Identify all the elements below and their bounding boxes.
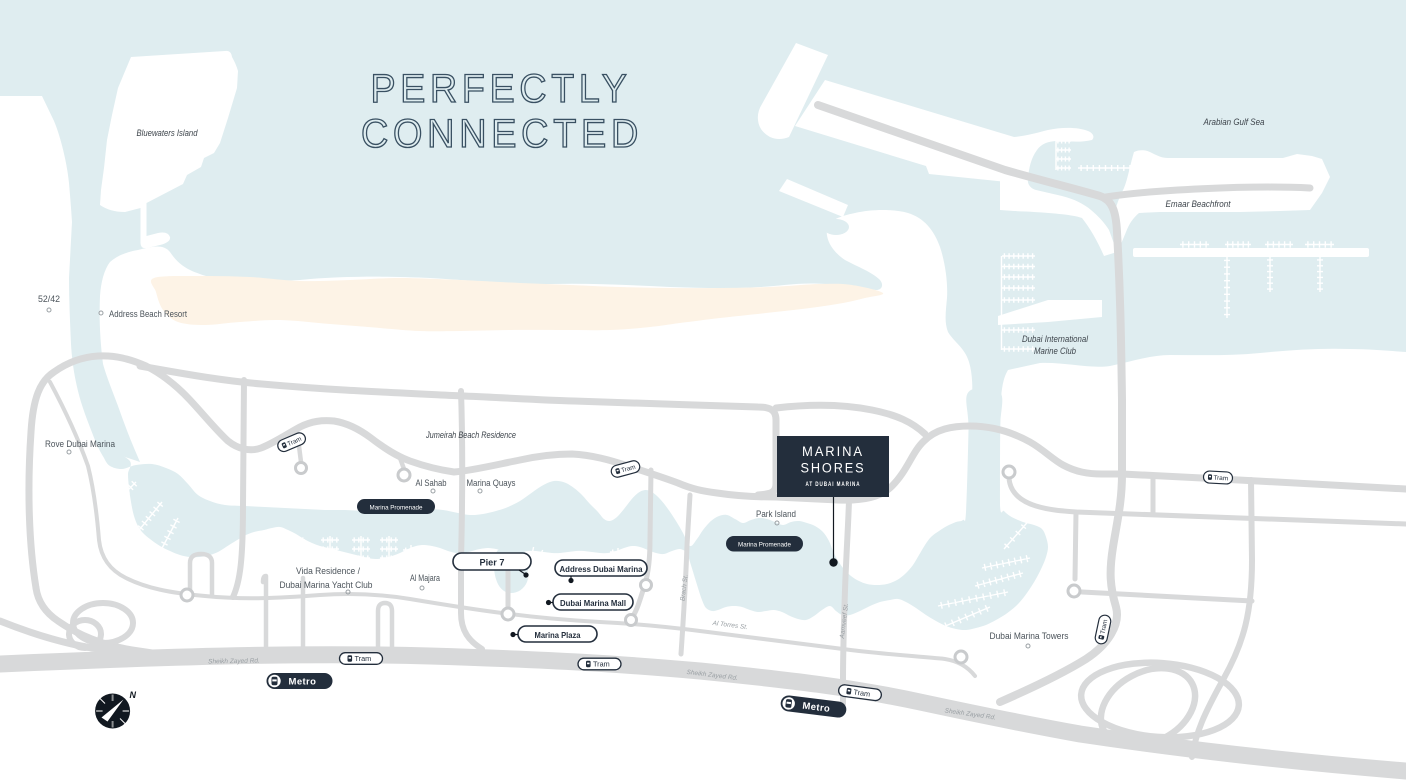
svg-text:SHORES: SHORES xyxy=(801,461,866,476)
svg-text:PERFECTLY: PERFECTLY xyxy=(371,67,632,111)
svg-text:Emaar Beachfront: Emaar Beachfront xyxy=(1166,199,1231,209)
svg-text:Marina Promenade: Marina Promenade xyxy=(370,505,423,512)
svg-text:AT DUBAI MARINA: AT DUBAI MARINA xyxy=(806,482,861,488)
svg-text:Dubai Marina Mall: Dubai Marina Mall xyxy=(560,598,626,608)
svg-text:Marina Promenade: Marina Promenade xyxy=(738,542,791,549)
svg-text:Marina Plaza: Marina Plaza xyxy=(535,630,581,640)
svg-text:Dubai Marina Yacht Club: Dubai Marina Yacht Club xyxy=(280,580,373,590)
svg-text:Arabian Gulf Sea: Arabian Gulf Sea xyxy=(1203,117,1265,127)
svg-text:Vida Residence /: Vida Residence / xyxy=(296,566,360,576)
svg-text:Bluewaters Island: Bluewaters Island xyxy=(137,128,199,138)
svg-text:Address Dubai Marina: Address Dubai Marina xyxy=(560,564,643,574)
svg-text:MARINA: MARINA xyxy=(802,444,864,459)
svg-text:CONNECTED: CONNECTED xyxy=(361,112,643,156)
svg-text:Address Beach Resort: Address Beach Resort xyxy=(109,309,187,319)
svg-text:Pier 7: Pier 7 xyxy=(480,558,505,568)
svg-text:Park Island: Park Island xyxy=(756,509,796,519)
svg-text:Marine Club: Marine Club xyxy=(1034,346,1076,356)
svg-text:Jumeirah Beach Residence: Jumeirah Beach Residence xyxy=(425,430,516,440)
svg-text:Al Sahab: Al Sahab xyxy=(416,478,447,488)
svg-text:Al Majara: Al Majara xyxy=(410,573,440,583)
svg-text:Sheikh Zayed Rd.: Sheikh Zayed Rd. xyxy=(208,658,260,666)
svg-text:Rove Dubai Marina: Rove Dubai Marina xyxy=(45,439,115,449)
svg-text:N: N xyxy=(130,690,137,700)
svg-text:Marina Quays: Marina Quays xyxy=(467,478,516,488)
svg-text:Dubai Marina Towers: Dubai Marina Towers xyxy=(990,631,1069,641)
svg-text:Dubai International: Dubai International xyxy=(1022,334,1089,344)
svg-text:52/42: 52/42 xyxy=(38,294,60,304)
